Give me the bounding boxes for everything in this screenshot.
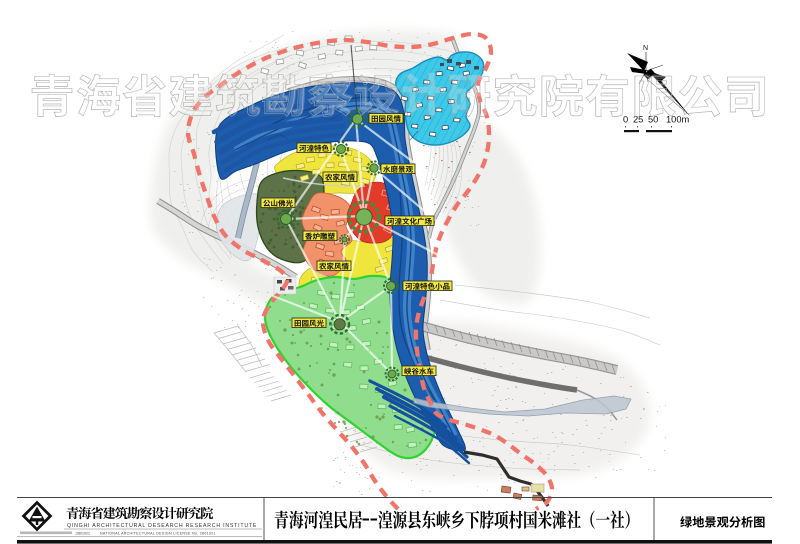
- svg-text:QINGHI ARCHITECTURAL DESEARC: QINGHI ARCHITECTURAL DESEARCH RESEARCH I…: [67, 523, 257, 529]
- svg-text:NATIONAL ARCHITECTURAL DESIG: NATIONAL ARCHITECTURAL DESIGN LICENSE No…: [100, 532, 216, 536]
- svg-text::2801021: :2801021: [75, 532, 90, 536]
- svg-text:0: 0: [623, 115, 628, 125]
- svg-text:N: N: [643, 45, 648, 52]
- svg-text:100m: 100m: [666, 115, 690, 125]
